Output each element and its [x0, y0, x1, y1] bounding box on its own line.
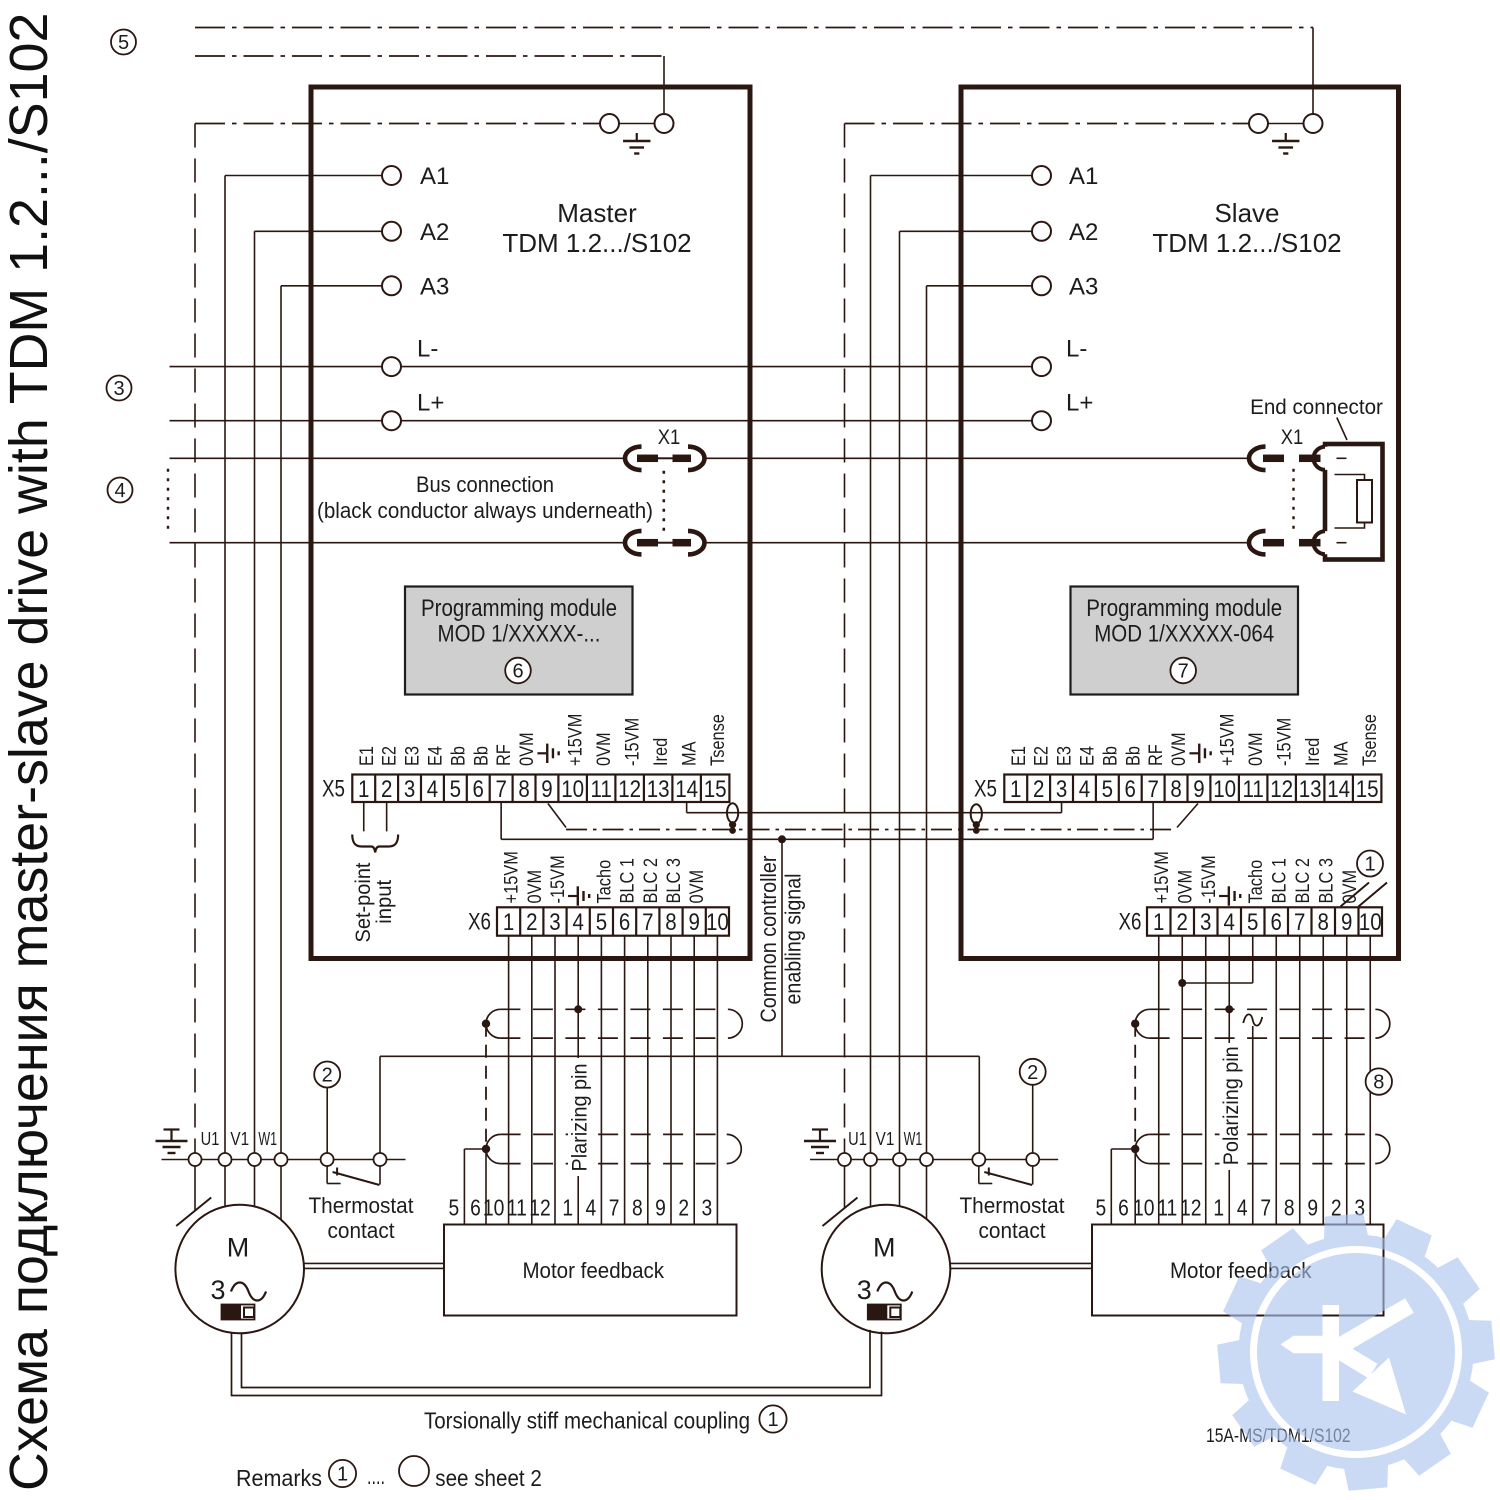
- svg-text:input: input: [373, 880, 396, 924]
- svg-text:7: 7: [1147, 776, 1158, 803]
- svg-text:MA: MA: [1331, 741, 1353, 766]
- svg-text:2: 2: [322, 1065, 333, 1087]
- svg-text:11: 11: [1157, 1195, 1177, 1221]
- svg-text:E1: E1: [356, 746, 378, 766]
- svg-text:1: 1: [503, 909, 514, 936]
- svg-text:Bb: Bb: [470, 746, 492, 766]
- svg-text:4: 4: [586, 1195, 597, 1221]
- svg-text:4: 4: [1079, 776, 1090, 803]
- svg-text:0VM: 0VM: [524, 870, 546, 904]
- svg-text:1: 1: [1364, 854, 1375, 876]
- svg-text:12: 12: [1270, 776, 1293, 803]
- svg-text:7: 7: [1294, 909, 1305, 936]
- svg-text:Tacho: Tacho: [593, 860, 615, 904]
- svg-text:10: 10: [706, 909, 729, 936]
- svg-text:9: 9: [689, 909, 700, 936]
- svg-text:5: 5: [1247, 909, 1258, 936]
- svg-text:V1: V1: [230, 1129, 249, 1149]
- svg-text:+15VM: +15VM: [501, 851, 523, 903]
- svg-text:E2: E2: [1031, 746, 1053, 766]
- svg-text:E2: E2: [379, 746, 401, 766]
- svg-text:1: 1: [358, 776, 369, 803]
- svg-text:BLC 2: BLC 2: [640, 858, 662, 904]
- svg-text:9: 9: [1193, 776, 1204, 803]
- svg-text:enabling signal: enabling signal: [781, 874, 806, 1005]
- svg-text:BLC 1: BLC 1: [617, 858, 639, 904]
- svg-text:6: 6: [470, 1195, 481, 1221]
- svg-text:Ired: Ired: [650, 738, 672, 766]
- svg-text:4: 4: [1237, 1195, 1248, 1221]
- svg-text:8: 8: [665, 909, 676, 936]
- svg-text:Bb: Bb: [1122, 746, 1144, 766]
- svg-text:A2: A2: [420, 219, 449, 246]
- svg-text:+15VM: +15VM: [1151, 851, 1173, 903]
- svg-text:10: 10: [561, 776, 584, 803]
- svg-text:TDM 1.2.../S102: TDM 1.2.../S102: [502, 228, 691, 258]
- svg-text:2: 2: [1027, 1062, 1038, 1084]
- svg-text:3: 3: [702, 1195, 713, 1221]
- svg-text:-15VM: -15VM: [547, 855, 569, 903]
- svg-text:5: 5: [596, 909, 607, 936]
- svg-text:-15VM: -15VM: [622, 718, 644, 766]
- svg-text:-15VM: -15VM: [1198, 855, 1220, 903]
- svg-text:U1: U1: [201, 1129, 220, 1149]
- svg-text:contact: contact: [979, 1218, 1046, 1243]
- svg-text:0VM: 0VM: [686, 870, 708, 904]
- svg-text:RF: RF: [1145, 744, 1167, 766]
- svg-text:3: 3: [404, 776, 415, 803]
- svg-text:6: 6: [1271, 909, 1282, 936]
- svg-text:9: 9: [541, 776, 552, 803]
- svg-text:14: 14: [675, 776, 698, 803]
- svg-text:8: 8: [1284, 1195, 1295, 1221]
- svg-text:L+: L+: [417, 390, 444, 417]
- svg-text:Схема подключения master-slave: Схема подключения master-slave drive wit…: [0, 13, 59, 1491]
- svg-text:Programming module: Programming module: [421, 595, 617, 622]
- svg-text:4: 4: [427, 776, 438, 803]
- svg-text:0VM: 0VM: [1245, 732, 1267, 766]
- svg-text:5: 5: [449, 1195, 460, 1221]
- svg-text:6: 6: [473, 776, 484, 803]
- svg-text:W1: W1: [904, 1129, 923, 1149]
- svg-text:10: 10: [1359, 909, 1382, 936]
- svg-text:U1: U1: [848, 1129, 867, 1149]
- svg-text:Polarizing pin: Polarizing pin: [1220, 1046, 1243, 1165]
- svg-text:1: 1: [562, 1195, 573, 1221]
- svg-text:1: 1: [1153, 909, 1164, 936]
- svg-text:V1: V1: [876, 1129, 895, 1149]
- svg-text:Tacho: Tacho: [1245, 860, 1267, 904]
- svg-text:2: 2: [381, 776, 392, 803]
- svg-text:Master: Master: [557, 198, 637, 228]
- svg-text:End connector: End connector: [1250, 395, 1383, 419]
- svg-text:9: 9: [1307, 1195, 1318, 1221]
- svg-text:12: 12: [618, 776, 641, 803]
- svg-text:3: 3: [210, 1275, 225, 1305]
- svg-text:BLC 1: BLC 1: [1268, 858, 1290, 904]
- svg-text:MOD 1/XXXXX-...: MOD 1/XXXXX-...: [438, 621, 601, 648]
- svg-text:E4: E4: [1076, 746, 1098, 766]
- svg-text:BLC 2: BLC 2: [1292, 858, 1314, 904]
- svg-text:7: 7: [495, 776, 506, 803]
- svg-text:10: 10: [1213, 776, 1236, 803]
- svg-text:Common controller: Common controller: [756, 856, 781, 1023]
- svg-text:2: 2: [526, 909, 537, 936]
- svg-text:E1: E1: [1008, 746, 1030, 766]
- svg-text:1: 1: [1010, 776, 1021, 803]
- svg-text:X6: X6: [1119, 909, 1142, 936]
- svg-text:11: 11: [1242, 776, 1263, 803]
- svg-text:....: ....: [367, 1463, 385, 1489]
- svg-text:5: 5: [1102, 776, 1113, 803]
- svg-text:7: 7: [1178, 661, 1189, 683]
- svg-text:7: 7: [609, 1195, 620, 1221]
- svg-text:E3: E3: [402, 746, 424, 766]
- svg-text:1: 1: [337, 1464, 348, 1486]
- svg-text:+15VM: +15VM: [1217, 714, 1239, 766]
- svg-text:3: 3: [1200, 909, 1211, 936]
- svg-text:0VM: 0VM: [516, 732, 538, 766]
- svg-text:0VM: 0VM: [1168, 732, 1190, 766]
- svg-text:0VM: 0VM: [593, 732, 615, 766]
- svg-text:Bb: Bb: [447, 746, 469, 766]
- svg-text:13: 13: [1299, 776, 1322, 803]
- svg-text:Thermostat: Thermostat: [309, 1193, 414, 1218]
- svg-text:MOD 1/XXXXX-064: MOD 1/XXXXX-064: [1094, 621, 1274, 648]
- svg-text:Set-point: Set-point: [352, 862, 375, 942]
- svg-text:8: 8: [1373, 1072, 1384, 1094]
- svg-text:A3: A3: [1069, 273, 1098, 300]
- svg-text:Programming module: Programming module: [1086, 595, 1282, 622]
- svg-text:Remarks: Remarks: [236, 1465, 322, 1491]
- svg-text:7: 7: [1260, 1195, 1271, 1221]
- svg-text:8: 8: [518, 776, 529, 803]
- svg-text:15: 15: [1356, 776, 1379, 803]
- svg-text:4: 4: [1224, 909, 1235, 936]
- svg-text:4: 4: [573, 909, 584, 936]
- svg-text:12: 12: [529, 1195, 551, 1221]
- svg-text:1: 1: [767, 1409, 778, 1431]
- svg-text:X5: X5: [322, 776, 345, 803]
- svg-text:0VM: 0VM: [1174, 870, 1196, 904]
- svg-text:2: 2: [1177, 909, 1188, 936]
- svg-text:10: 10: [1133, 1195, 1155, 1221]
- svg-text:M: M: [873, 1233, 896, 1263]
- svg-text:Motor feedback: Motor feedback: [522, 1258, 665, 1283]
- svg-text:M: M: [227, 1233, 250, 1263]
- svg-text:A3: A3: [420, 273, 449, 300]
- svg-text:8: 8: [1170, 776, 1181, 803]
- svg-text:L-: L-: [417, 336, 438, 363]
- svg-text:9: 9: [655, 1195, 666, 1221]
- svg-text:9: 9: [1341, 909, 1352, 936]
- svg-text:BLC 3: BLC 3: [663, 858, 685, 904]
- svg-text:14: 14: [1327, 776, 1350, 803]
- svg-text:Ired: Ired: [1302, 738, 1324, 766]
- svg-text:X1: X1: [658, 426, 681, 449]
- svg-text:8: 8: [1318, 909, 1329, 936]
- svg-text:2: 2: [678, 1195, 689, 1221]
- svg-text:BLC 3: BLC 3: [1315, 858, 1337, 904]
- svg-text:11: 11: [507, 1195, 527, 1221]
- svg-text:3: 3: [857, 1275, 872, 1305]
- svg-text:A1: A1: [420, 163, 449, 190]
- svg-text:Bus connection: Bus connection: [416, 472, 554, 497]
- svg-text:5: 5: [118, 32, 129, 54]
- svg-text:TDM 1.2.../S102: TDM 1.2.../S102: [1152, 228, 1341, 258]
- svg-text:2: 2: [1033, 776, 1044, 803]
- svg-text:see sheet 2: see sheet 2: [435, 1465, 542, 1491]
- svg-text:12: 12: [1180, 1195, 1202, 1221]
- svg-text:4: 4: [114, 480, 125, 502]
- svg-text:Torsionally stiff mechanical c: Torsionally stiff mechanical coupling: [424, 1408, 750, 1434]
- svg-text:3: 3: [1056, 776, 1067, 803]
- svg-text:1: 1: [1213, 1195, 1224, 1221]
- svg-text:Tsense: Tsense: [707, 714, 729, 766]
- svg-text:7: 7: [642, 909, 653, 936]
- svg-text:6: 6: [619, 909, 630, 936]
- svg-text:L-: L-: [1066, 336, 1087, 363]
- svg-text:X6: X6: [468, 909, 491, 936]
- svg-text:Plarizing pin: Plarizing pin: [569, 1064, 592, 1172]
- svg-text:3: 3: [113, 378, 124, 400]
- svg-text:X1: X1: [1281, 426, 1304, 449]
- svg-text:+15VM: +15VM: [565, 714, 587, 766]
- svg-text:E4: E4: [424, 746, 446, 766]
- svg-text:-15VM: -15VM: [1274, 718, 1296, 766]
- svg-text:A2: A2: [1069, 219, 1098, 246]
- svg-text:E3: E3: [1054, 746, 1076, 766]
- svg-text:6: 6: [1125, 776, 1136, 803]
- svg-text:X5: X5: [974, 776, 997, 803]
- svg-text:L+: L+: [1066, 390, 1093, 417]
- svg-text:6: 6: [1118, 1195, 1129, 1221]
- svg-text:Thermostat: Thermostat: [960, 1193, 1065, 1218]
- svg-text:(black conductor always undern: (black conductor always underneath): [317, 498, 653, 523]
- svg-text:3: 3: [549, 909, 560, 936]
- svg-text:5: 5: [1095, 1195, 1106, 1221]
- svg-text:MA: MA: [679, 741, 701, 766]
- svg-text:A1: A1: [1069, 163, 1098, 190]
- svg-text:Bb: Bb: [1099, 746, 1121, 766]
- svg-text:8: 8: [632, 1195, 643, 1221]
- svg-text:15: 15: [704, 776, 727, 803]
- svg-text:RF: RF: [493, 744, 515, 766]
- svg-text:Slave: Slave: [1214, 198, 1279, 228]
- svg-text:6: 6: [512, 661, 523, 683]
- svg-text:contact: contact: [328, 1218, 395, 1243]
- svg-text:Tsense: Tsense: [1359, 714, 1381, 766]
- svg-text:13: 13: [647, 776, 670, 803]
- svg-text:W1: W1: [258, 1129, 277, 1149]
- svg-text:5: 5: [450, 776, 461, 803]
- svg-text:10: 10: [483, 1195, 505, 1221]
- svg-text:11: 11: [590, 776, 611, 803]
